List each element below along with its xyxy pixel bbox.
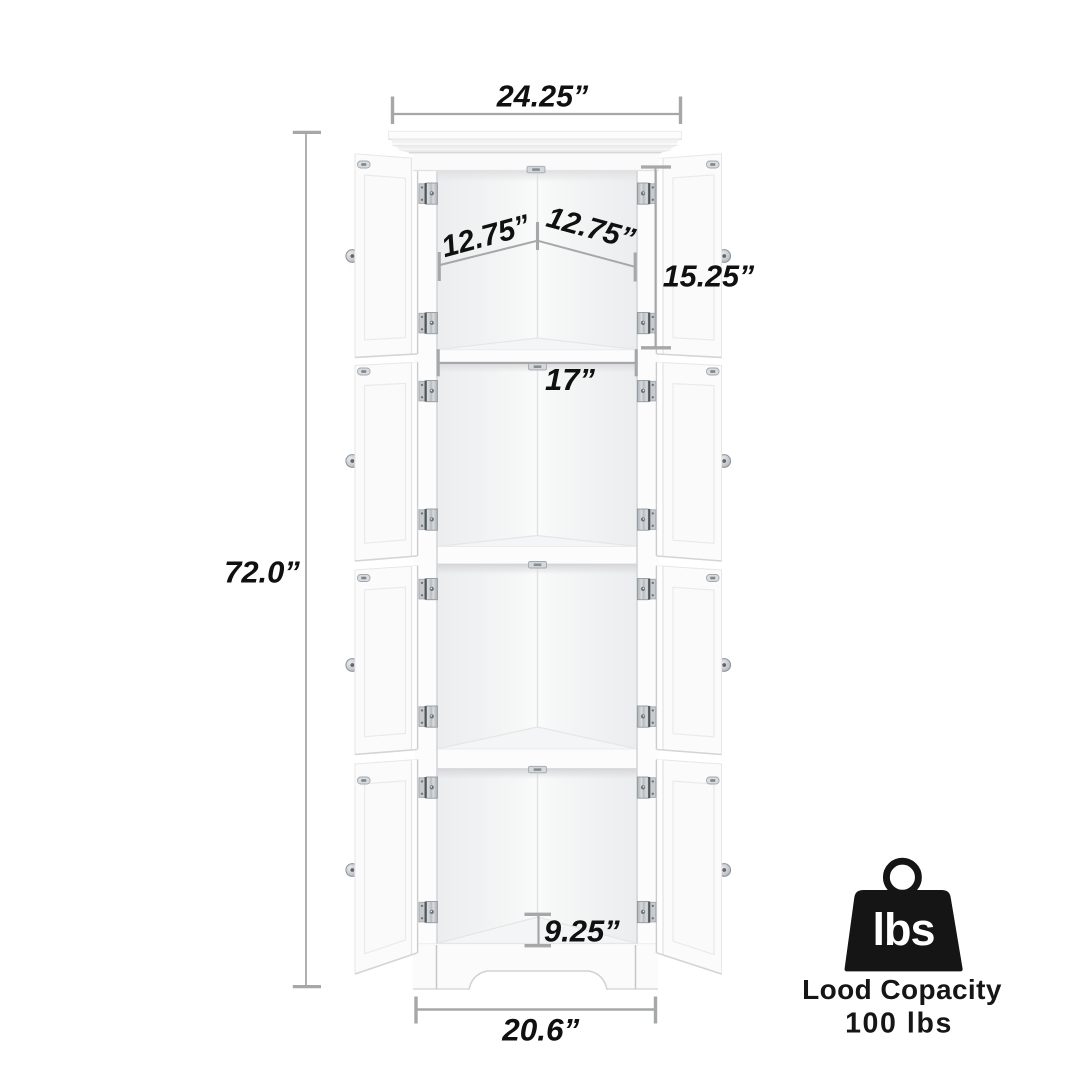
svg-text:17”: 17” [545, 362, 595, 397]
svg-text:100 lbs: 100 lbs [845, 1008, 953, 1040]
svg-text:9.25”: 9.25” [544, 913, 620, 948]
svg-text:Lood Copacity: Lood Copacity [802, 974, 1002, 1005]
svg-text:15.25”: 15.25” [663, 260, 755, 294]
svg-text:72.0”: 72.0” [224, 555, 300, 590]
svg-text:24.25”: 24.25” [496, 80, 589, 114]
svg-text:20.6”: 20.6” [501, 1012, 579, 1048]
svg-text:lbs: lbs [872, 904, 934, 955]
